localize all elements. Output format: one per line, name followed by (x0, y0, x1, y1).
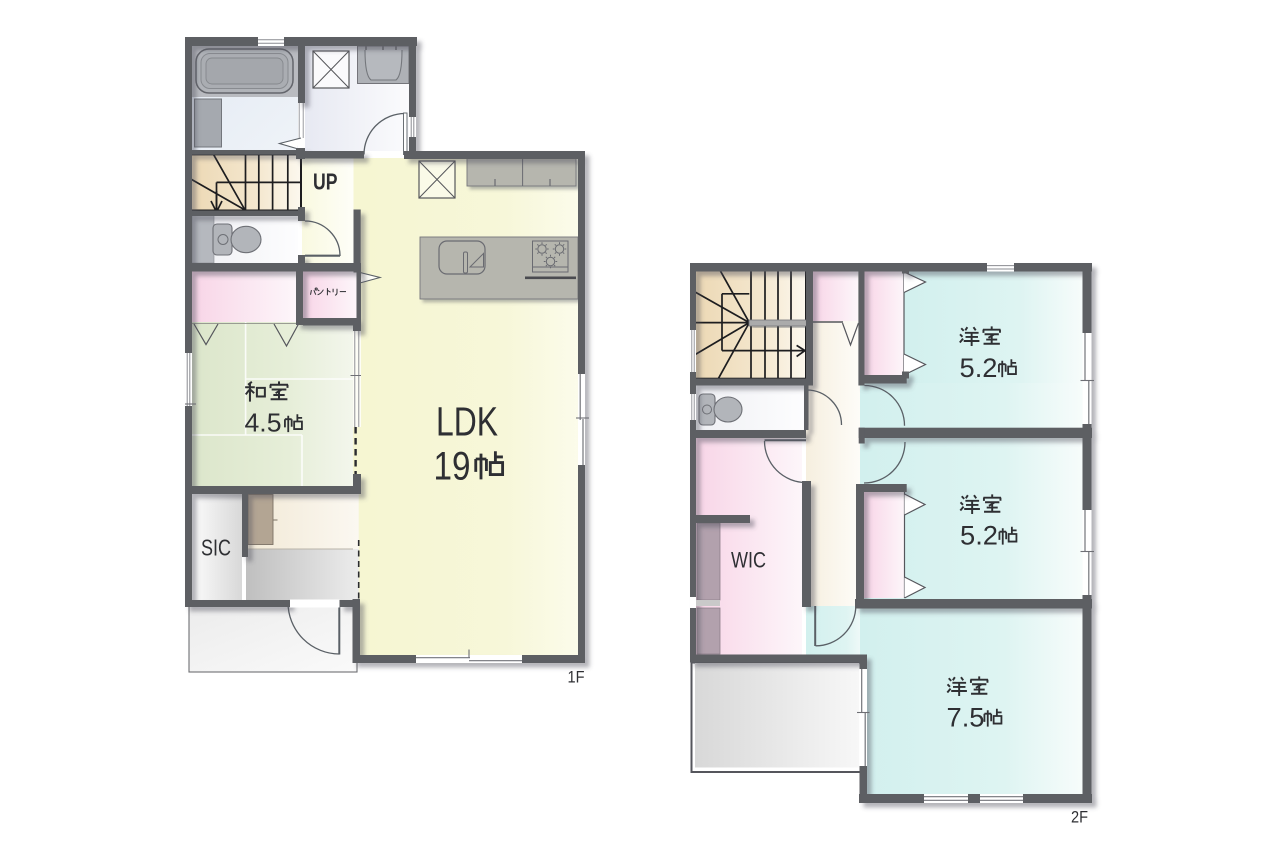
svg-text:LDK: LDK (436, 399, 498, 445)
svg-text:2F: 2F (1071, 808, 1088, 827)
svg-text:19: 19 (434, 445, 471, 489)
svg-text:7.5: 7.5 (947, 703, 985, 733)
svg-text:5.2: 5.2 (960, 353, 998, 383)
svg-text:1F: 1F (568, 668, 585, 687)
svg-text:WIC: WIC (731, 548, 766, 573)
svg-text:SIC: SIC (201, 535, 231, 561)
svg-text:4.5: 4.5 (245, 408, 282, 438)
svg-text:5.2: 5.2 (960, 521, 998, 551)
svg-text:UP: UP (313, 169, 338, 195)
